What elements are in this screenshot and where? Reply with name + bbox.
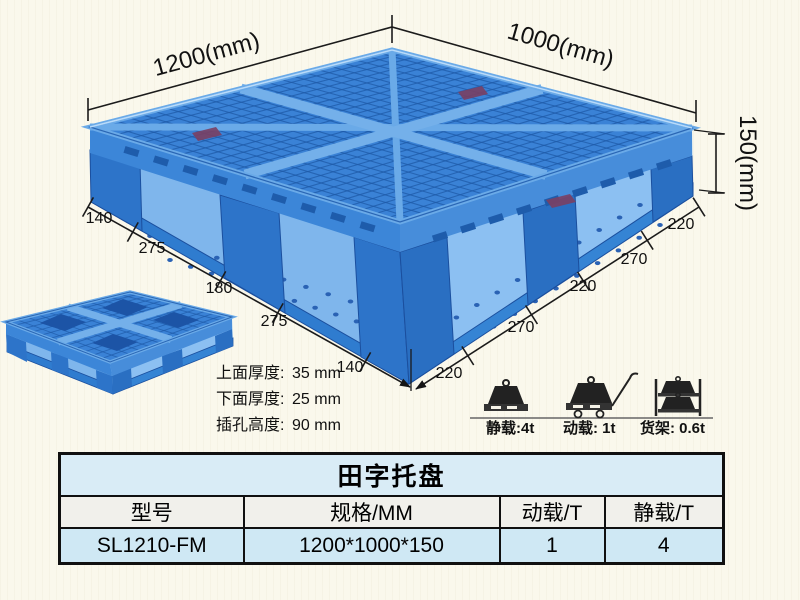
table-row: SL1210-FM 1200*1000*150 1 4 [60,528,724,564]
cell-dynamic-load: 1 [500,528,605,564]
cell-spec: 1200*1000*150 [244,528,500,564]
rack-load-label: 货架: 0.6t [640,419,705,437]
header-spec: 规格/MM [244,496,500,528]
product-spec-sheet: 1200(mm) 1000(mm) 150(mm) 140 275 180 27… [0,0,800,600]
dim-value: 220 [570,278,597,295]
dim-value: 270 [621,251,648,268]
table-title: 田字托盘 [60,454,724,497]
spec-line: 插孔高度:90 mm [216,416,341,434]
static-load-icon [484,380,528,411]
dim-value: 270 [508,319,535,336]
dim-value: 275 [261,313,288,330]
cell-model: SL1210-FM [60,528,244,564]
dim-value: 220 [436,365,463,382]
rack-load-icon [656,377,700,416]
header-static-load: 静载/T [605,496,724,528]
pallet-photo-small [6,292,233,394]
thickness-specs: 上面厚度:35 mm 下面厚度:25 mm 插孔高度:90 mm [216,364,341,434]
dim-label-width: 1200(mm) [150,27,263,82]
header-model: 型号 [60,496,244,528]
spec-line: 上面厚度:35 mm [216,364,341,382]
dim-value: 275 [139,240,166,257]
spec-table: 田字托盘 型号 规格/MM 动载/T 静载/T SL1210-FM 1200*1… [58,452,725,565]
dynamic-load-label: 动载: 1t [563,419,616,437]
header-dynamic-load: 动载/T [500,496,605,528]
table-header-row: 型号 规格/MM 动载/T 静载/T [60,496,724,528]
dynamic-load-icon [566,374,638,418]
dim-value: 140 [86,210,113,227]
dim-label-height: 150(mm) [734,115,761,211]
spec-line: 下面厚度:25 mm [216,390,341,408]
dim-value: 180 [206,280,233,297]
cell-static-load: 4 [605,528,724,564]
dim-label-depth: 1000(mm) [504,18,617,74]
dim-value: 220 [668,216,695,233]
load-capacity-icons: 静载:4t 动载: 1t 货架: 0.6t [470,374,713,438]
table-title-row: 田字托盘 [60,454,724,497]
static-load-label: 静载:4t [486,419,534,437]
